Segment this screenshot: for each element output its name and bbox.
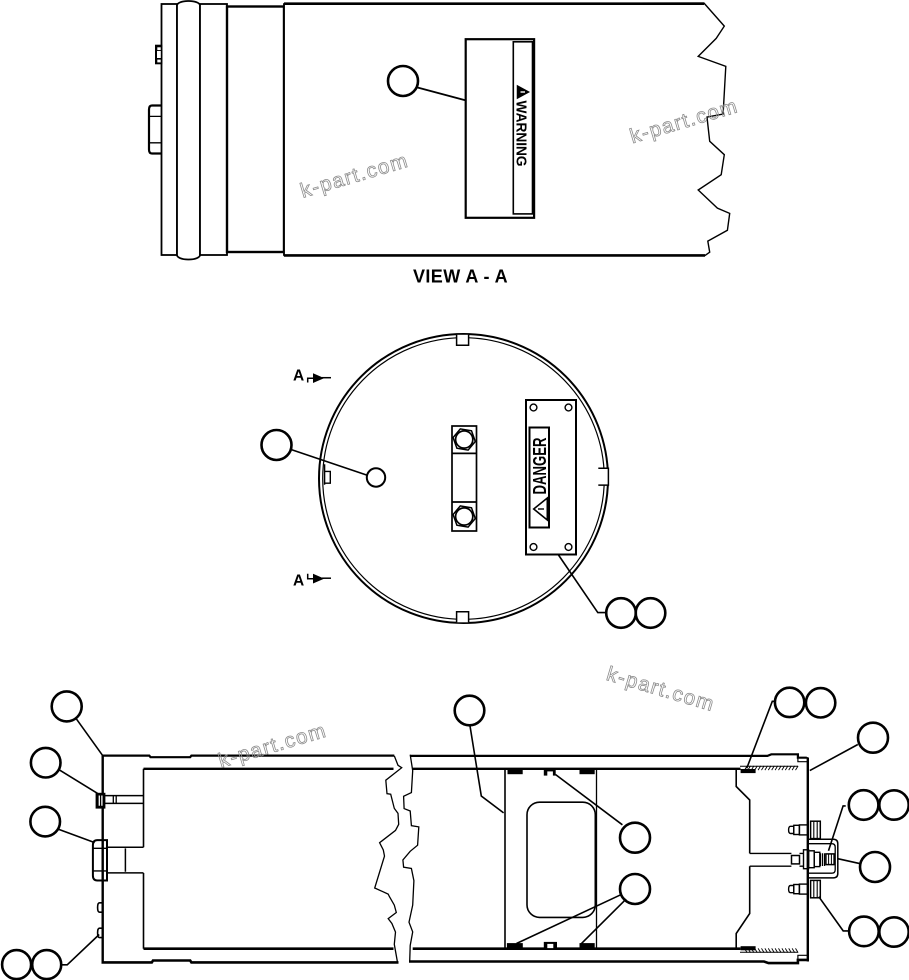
- svg-text:DANGER: DANGER: [530, 438, 550, 495]
- svg-text:A: A: [293, 573, 304, 590]
- svg-text:A: A: [293, 368, 304, 385]
- svg-text:VIEW A - A: VIEW A - A: [413, 267, 508, 287]
- svg-text:WARNING: WARNING: [513, 101, 530, 167]
